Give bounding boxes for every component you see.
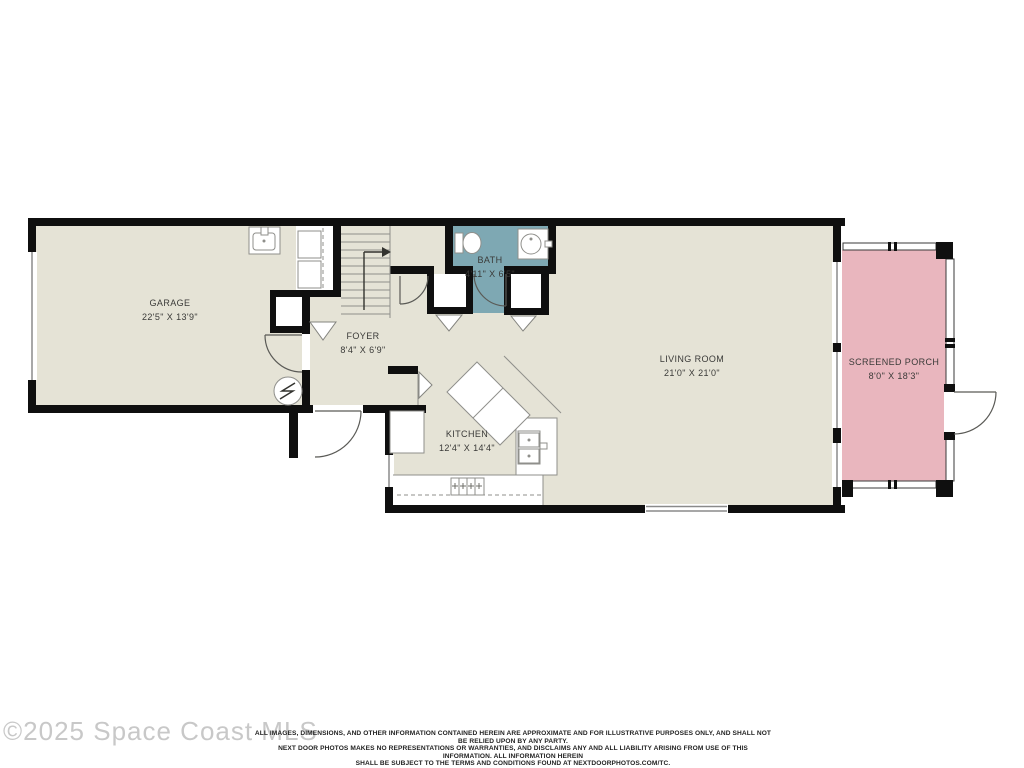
- toilet-icon: [455, 233, 481, 254]
- refrigerator-icon: [390, 411, 424, 453]
- room-dims: 21'0" X 21'0": [660, 367, 724, 381]
- kitchen-label: KITCHEN 12'4" X 14'4": [439, 428, 495, 455]
- porch-door-jamb-top: [944, 384, 955, 392]
- room-dims: 22'5" X 13'9": [142, 311, 198, 325]
- room-dims: 4'11" X 6'5": [465, 268, 515, 282]
- room-name: BATH: [465, 254, 515, 268]
- electrical-panel-icon: [274, 377, 302, 405]
- porch-screen-right: [946, 259, 954, 481]
- room-dims: 8'4" X 6'9": [340, 344, 385, 358]
- screened-porch-label: SCREENED PORCH 8'0" X 18'3": [849, 356, 940, 383]
- front-door-opening: [313, 405, 363, 413]
- under-stair-closet: [276, 297, 302, 326]
- garage-label: GARAGE 22'5" X 13'9": [142, 297, 198, 324]
- room-dims: 8'0" X 18'3": [849, 370, 940, 384]
- floorplan-drawing: [0, 0, 1024, 768]
- hall-closet-right: [511, 273, 541, 308]
- disclaimer-line: ALL IMAGES, DIMENSIONS, AND OTHER INFORM…: [254, 730, 772, 745]
- bathroom-sink-icon: [518, 229, 552, 259]
- disclaimer-line: NEXT DOOR PHOTOS MAKES NO REPRESENTATION…: [254, 745, 772, 760]
- room-name: SCREENED PORCH: [849, 356, 940, 370]
- porch-post-se: [936, 480, 953, 497]
- porch-door: [954, 392, 996, 434]
- utility-sink-icon: [249, 227, 280, 254]
- room-name: FOYER: [340, 330, 385, 344]
- entry-vestibule: [296, 413, 385, 513]
- room-dims: 12'4" X 14'4": [439, 442, 495, 456]
- living-room-label: LIVING ROOM 21'0" X 21'0": [660, 353, 724, 380]
- porch-post-ne: [936, 242, 953, 259]
- foyer-label: FOYER 8'4" X 6'9": [340, 330, 385, 357]
- porch-door-jamb-bottom: [944, 432, 955, 440]
- range-icon: [451, 478, 484, 495]
- garage-entry-opening: [302, 334, 310, 370]
- bath-label: BATH 4'11" X 6'5": [465, 254, 515, 281]
- room-name: GARAGE: [142, 297, 198, 311]
- room-name: KITCHEN: [439, 428, 495, 442]
- floorplan-page: GARAGE 22'5" X 13'9" FOYER 8'4" X 6'9" B…: [0, 0, 1024, 768]
- disclaimer-line: SHALL BE SUBJECT TO THE TERMS AND CONDIT…: [254, 760, 772, 768]
- room-name: LIVING ROOM: [660, 353, 724, 367]
- hall-closet-left: [434, 274, 466, 307]
- disclaimer: ALL IMAGES, DIMENSIONS, AND OTHER INFORM…: [254, 730, 772, 768]
- porch-post-sw: [842, 480, 853, 497]
- porch-door-opening: [944, 392, 956, 432]
- living-room-slider-window: [645, 504, 728, 514]
